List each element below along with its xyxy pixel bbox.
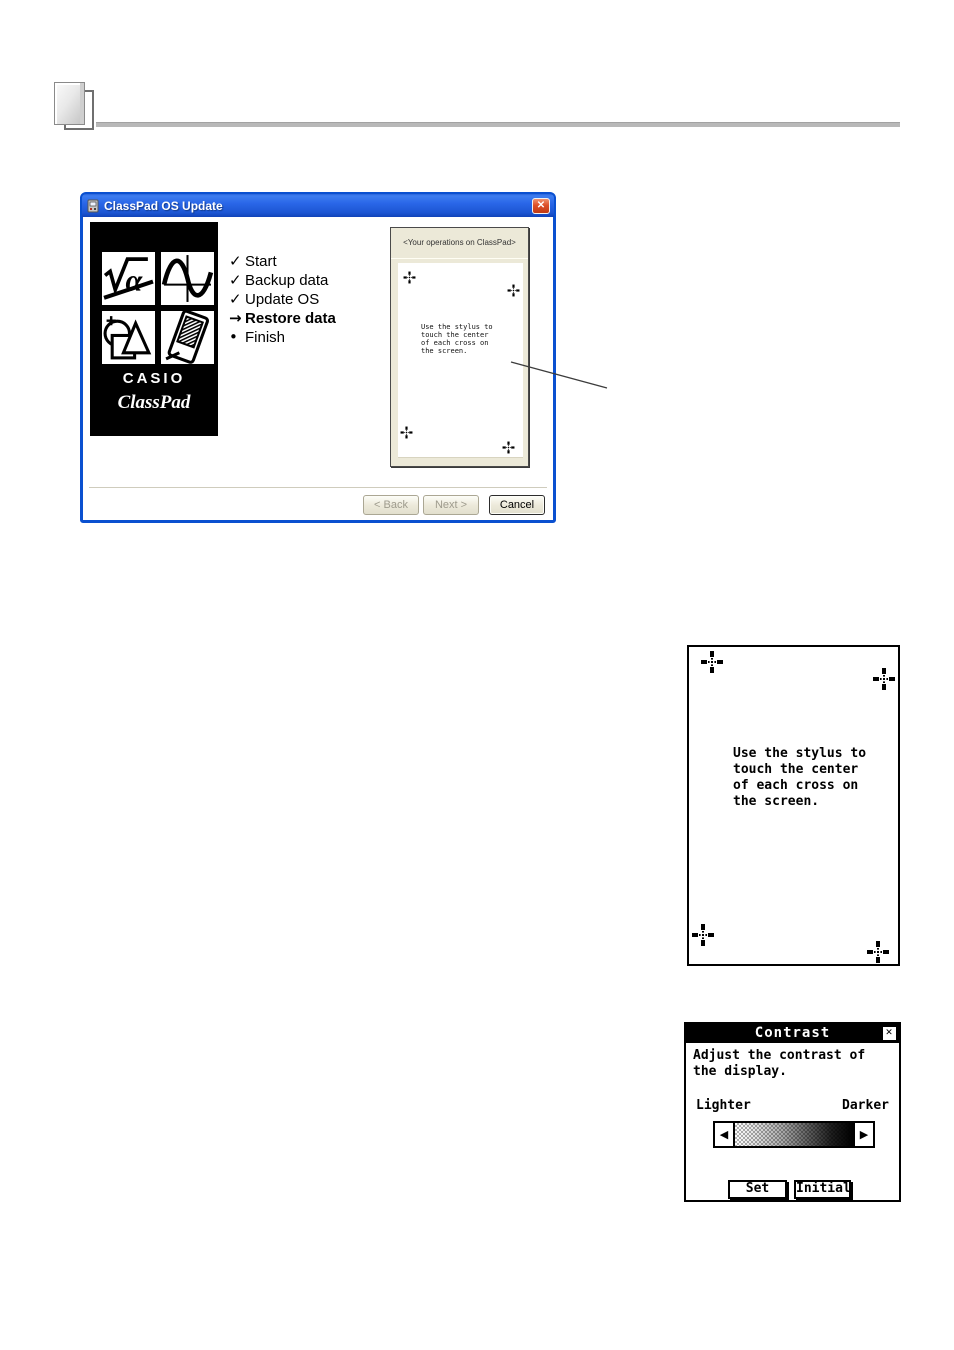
initial-button[interactable]: Initial bbox=[794, 1180, 851, 1199]
classpad-product-text: ClassPad bbox=[90, 392, 218, 414]
logo-tile-sqrt-alpha-icon: α bbox=[102, 252, 155, 305]
step-start: ✓Start bbox=[229, 252, 379, 271]
slider-gradient-track[interactable] bbox=[733, 1123, 855, 1146]
header-divider-rule bbox=[96, 122, 900, 127]
line-1: Use the stylus to bbox=[733, 746, 866, 761]
step-label: Start bbox=[245, 253, 277, 270]
set-button[interactable]: Set bbox=[728, 1180, 787, 1199]
line-3: of each cross on bbox=[733, 778, 858, 793]
back-button[interactable]: < Back bbox=[363, 495, 419, 515]
classpad-os-update-dialog: ClassPad OS Update ✕ α bbox=[80, 192, 556, 523]
check-icon: ✓ bbox=[229, 271, 245, 289]
step-finish: •Finish bbox=[229, 328, 379, 347]
check-icon: ✓ bbox=[229, 290, 245, 308]
slider-right-arrow-icon[interactable]: ▶ bbox=[855, 1123, 873, 1146]
dialog-titlebar[interactable]: ClassPad OS Update ✕ bbox=[82, 194, 554, 217]
close-icon[interactable]: ✕ bbox=[883, 1027, 896, 1040]
mini-screen-instructions: Use the stylus totouch the centerof each… bbox=[421, 323, 493, 355]
logo-tile-graph-icon bbox=[161, 252, 214, 305]
crosshair-bottom-left-icon bbox=[400, 426, 413, 439]
contrast-message: Adjust the contrast ofthe display. bbox=[693, 1048, 865, 1080]
contrast-slider[interactable]: ◀ ▶ bbox=[713, 1121, 875, 1148]
msg-line-1: Adjust the contrast of bbox=[693, 1048, 865, 1063]
logo-tile-grid: α bbox=[102, 252, 214, 364]
logo-tile-device-icon bbox=[161, 311, 214, 364]
crosshair-bottom-right-icon[interactable] bbox=[866, 940, 890, 964]
step-update-os: ✓Update OS bbox=[229, 290, 379, 309]
next-button[interactable]: Next > bbox=[423, 495, 479, 515]
mini-line-1: Use the stylus to bbox=[421, 323, 493, 331]
arrow-right-icon: → bbox=[229, 309, 245, 327]
step-restore-data-current: →Restore data bbox=[229, 309, 379, 328]
step-backup-data: ✓Backup data bbox=[229, 271, 379, 290]
bullet-icon: • bbox=[229, 328, 245, 346]
contrast-title: Contrast bbox=[755, 1025, 830, 1041]
slider-left-arrow-icon[interactable]: ◀ bbox=[715, 1123, 733, 1146]
section-page-icon bbox=[54, 82, 96, 132]
line-2: touch the center bbox=[733, 762, 858, 777]
app-icon bbox=[86, 199, 100, 213]
operations-panel-header: <Your operations on ClassPad> bbox=[391, 228, 528, 259]
crosshair-top-right-icon[interactable] bbox=[872, 667, 896, 691]
mini-line-3: of each cross on bbox=[421, 339, 488, 347]
casio-brand-text: CASIO bbox=[90, 370, 218, 387]
mini-classpad-screen: Use the stylus totouch the centerof each… bbox=[398, 263, 523, 457]
operations-preview-panel: <Your operations on ClassPad> Use the st… bbox=[390, 227, 529, 467]
check-icon: ✓ bbox=[229, 252, 245, 270]
close-icon[interactable]: ✕ bbox=[532, 198, 550, 214]
darker-label: Darker bbox=[842, 1098, 889, 1113]
crosshair-top-left-icon[interactable] bbox=[700, 650, 724, 674]
casio-classpad-logo-panel: α bbox=[90, 222, 218, 436]
classpad-calibration-screen: Use the stylus totouch the centerof each… bbox=[687, 645, 900, 966]
update-step-list: ✓Start ✓Backup data ✓Update OS →Restore … bbox=[229, 252, 379, 347]
step-label: Restore data bbox=[245, 310, 336, 327]
lighter-label: Lighter bbox=[696, 1098, 751, 1113]
step-label: Finish bbox=[245, 329, 285, 346]
contrast-body: Adjust the contrast ofthe display. Light… bbox=[686, 1043, 899, 1200]
step-label: Update OS bbox=[245, 291, 319, 308]
dialog-title: ClassPad OS Update bbox=[104, 199, 223, 213]
contrast-dialog: Contrast ✕ Adjust the contrast ofthe dis… bbox=[684, 1022, 901, 1202]
page-icon-front-page bbox=[54, 82, 85, 125]
mini-line-4: the screen. bbox=[421, 347, 467, 355]
crosshair-top-right-icon bbox=[507, 284, 520, 297]
crosshair-bottom-right-icon bbox=[502, 441, 515, 454]
contrast-titlebar: Contrast ✕ bbox=[686, 1024, 899, 1043]
logo-tile-geometry-icon bbox=[102, 311, 155, 364]
step-label: Backup data bbox=[245, 272, 328, 289]
button-row-separator bbox=[89, 487, 547, 489]
msg-line-2: the display. bbox=[693, 1064, 787, 1079]
mini-line-2: touch the center bbox=[421, 331, 488, 339]
dialog-body: α bbox=[83, 217, 553, 520]
svg-text:α: α bbox=[125, 264, 143, 298]
line-4: the screen. bbox=[733, 794, 819, 809]
crosshair-top-left-icon bbox=[403, 271, 416, 284]
calibration-instructions: Use the stylus totouch the centerof each… bbox=[733, 746, 866, 810]
cancel-button[interactable]: Cancel bbox=[489, 495, 545, 515]
crosshair-bottom-left-icon[interactable] bbox=[691, 923, 715, 947]
